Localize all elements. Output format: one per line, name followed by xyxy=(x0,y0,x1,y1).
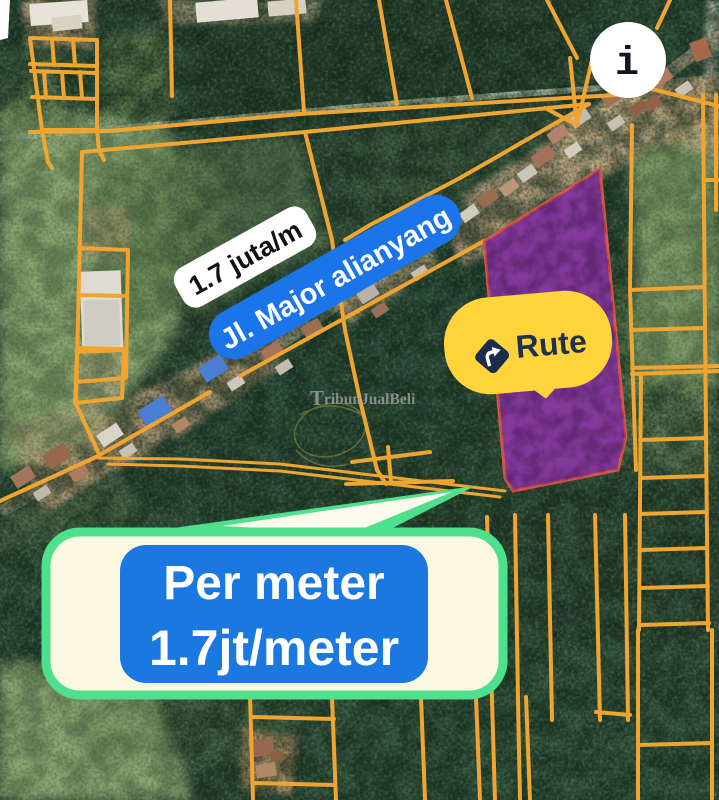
svg-text:Rute: Rute xyxy=(514,323,588,365)
svg-text:i: i xyxy=(615,42,639,87)
svg-text:T: T xyxy=(310,386,324,410)
svg-text:ribunJualBeli: ribunJualBeli xyxy=(324,391,416,408)
svg-text:1.7jt/meter: 1.7jt/meter xyxy=(149,620,399,676)
svg-text:Per meter: Per meter xyxy=(163,557,384,610)
